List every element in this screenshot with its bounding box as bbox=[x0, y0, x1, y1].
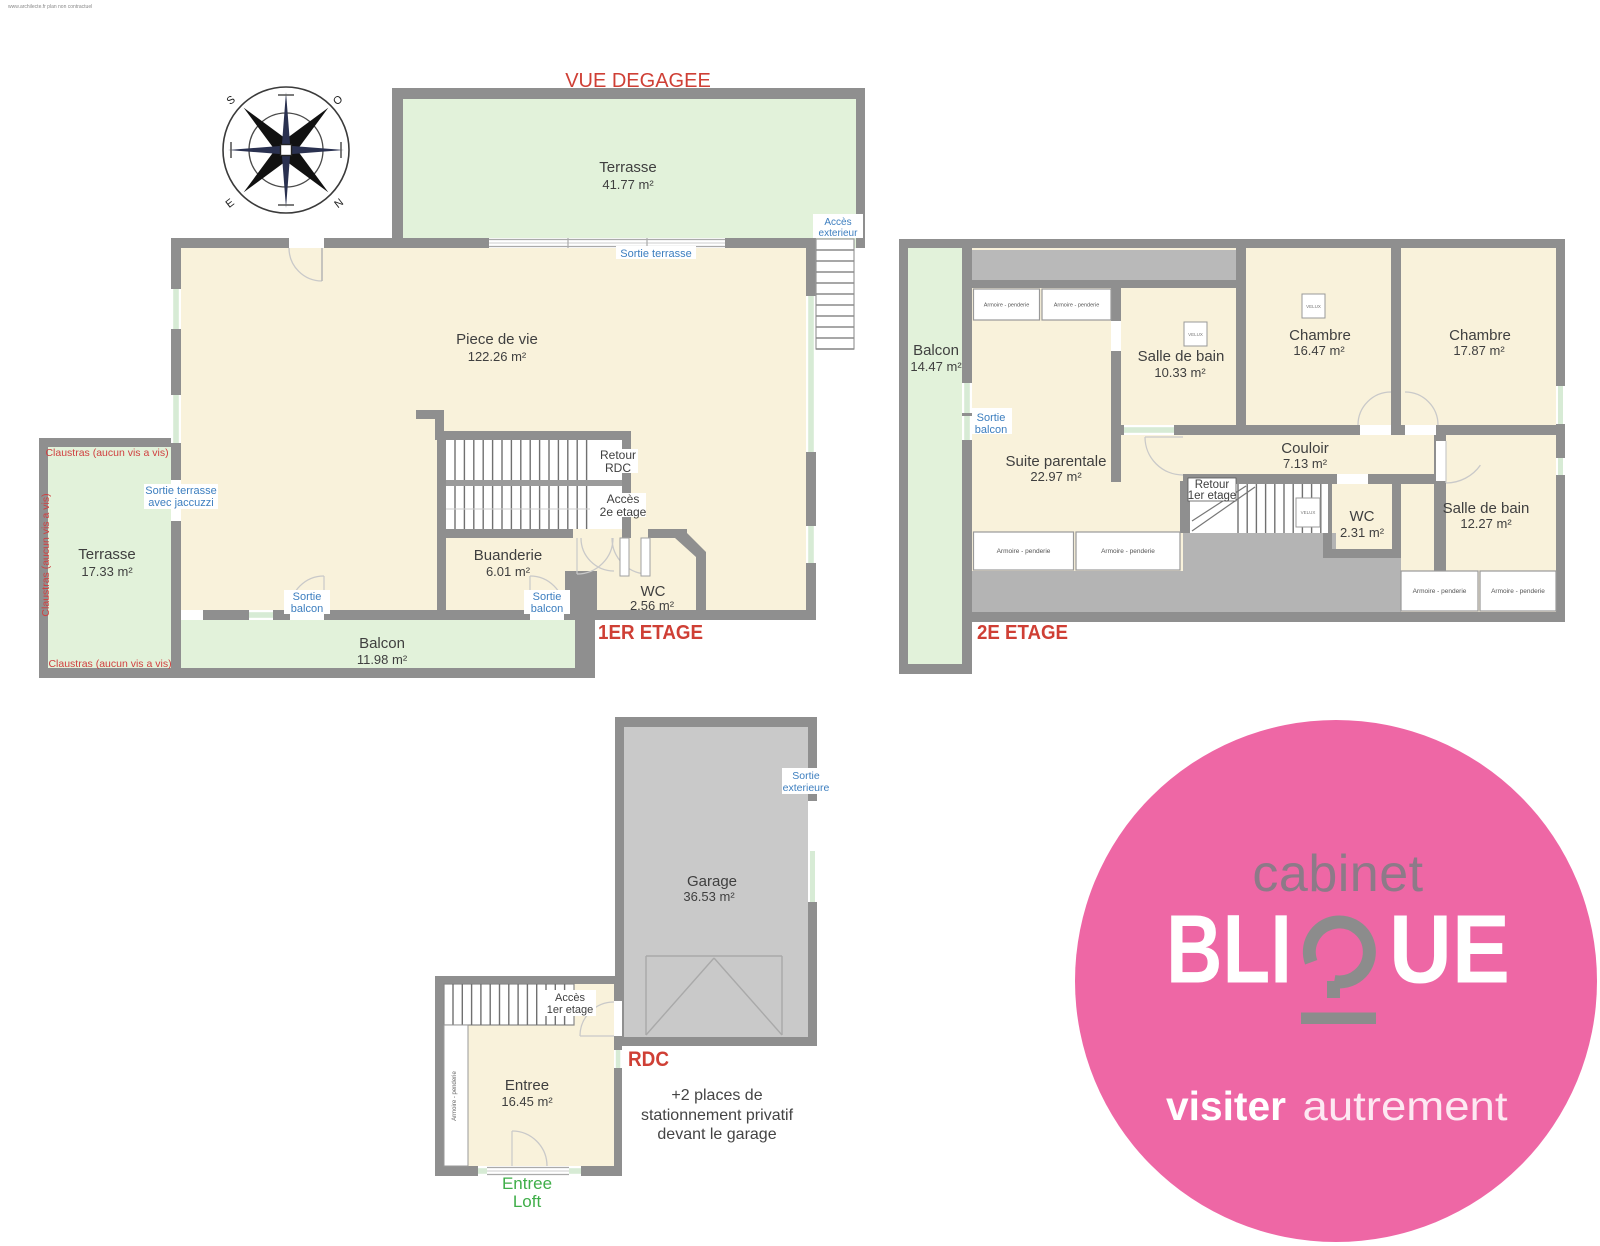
svg-text:Accès: Accès bbox=[824, 217, 851, 228]
svg-text:WC: WC bbox=[1350, 508, 1375, 525]
svg-text:RDC: RDC bbox=[605, 461, 631, 475]
svg-text:Claustras (aucun vis a vis): Claustras (aucun vis a vis) bbox=[48, 658, 171, 670]
svg-text:Sortie: Sortie bbox=[293, 591, 322, 603]
svg-text:exterieur: exterieur bbox=[819, 228, 859, 239]
svg-text:Loft: Loft bbox=[513, 1192, 542, 1211]
svg-text:22.97 m²: 22.97 m² bbox=[1030, 469, 1082, 484]
svg-text:Sortie terrasse: Sortie terrasse bbox=[620, 248, 692, 260]
svg-text:2.56 m²: 2.56 m² bbox=[630, 598, 675, 613]
svg-text:2.31 m²: 2.31 m² bbox=[1340, 525, 1385, 540]
svg-text:www.archilecte.fr plan non c: www.archilecte.fr plan non contractuel bbox=[8, 4, 92, 10]
svg-text:16.47 m²: 16.47 m² bbox=[1293, 343, 1345, 358]
svg-text:7.13 m²: 7.13 m² bbox=[1283, 456, 1328, 471]
svg-text:1ER ETAGE: 1ER ETAGE bbox=[598, 622, 703, 644]
svg-text:Armoire - penderie: Armoire - penderie bbox=[984, 303, 1030, 309]
svg-text:RDC: RDC bbox=[628, 1048, 669, 1071]
svg-text:balcon: balcon bbox=[291, 603, 323, 615]
svg-text:Sortie: Sortie bbox=[792, 770, 820, 782]
svg-text:devant le garage: devant le garage bbox=[657, 1126, 776, 1143]
svg-text:2E ETAGE: 2E ETAGE bbox=[977, 622, 1068, 644]
svg-text:Armoire - penderie: Armoire - penderie bbox=[1413, 588, 1467, 595]
svg-text:Piece de vie: Piece de vie bbox=[456, 331, 538, 348]
svg-text:Terrasse: Terrasse bbox=[78, 546, 136, 563]
svg-text:visiter: visiter bbox=[1166, 1083, 1286, 1129]
svg-text:1er etage: 1er etage bbox=[1188, 490, 1237, 502]
svg-text:Salle de bain: Salle de bain bbox=[1138, 348, 1225, 365]
svg-text:Entree: Entree bbox=[502, 1174, 552, 1193]
svg-text:Claustras (aucun vis a vis): Claustras (aucun vis a vis) bbox=[40, 493, 52, 616]
svg-text:VELUX: VELUX bbox=[1306, 304, 1321, 309]
svg-text:17.87 m²: 17.87 m² bbox=[1453, 343, 1505, 358]
svg-text:VELUX: VELUX bbox=[1301, 510, 1316, 515]
svg-text:17.33 m²: 17.33 m² bbox=[81, 564, 133, 579]
svg-text:12.27 m²: 12.27 m² bbox=[1460, 516, 1512, 531]
svg-text:Garage: Garage bbox=[687, 873, 737, 890]
svg-text:BLI: BLI bbox=[1166, 895, 1292, 1004]
svg-text:Sortie: Sortie bbox=[977, 412, 1006, 424]
svg-text:11.98 m²: 11.98 m² bbox=[357, 652, 408, 667]
svg-text:+2 places de: +2 places de bbox=[671, 1087, 762, 1104]
svg-text:Chambre: Chambre bbox=[1449, 327, 1511, 344]
svg-text:Accès: Accès bbox=[555, 992, 585, 1004]
svg-text:stationnement privatif: stationnement privatif bbox=[641, 1107, 794, 1124]
svg-text:16.45 m²: 16.45 m² bbox=[501, 1094, 553, 1109]
svg-text:Suite parentale: Suite parentale bbox=[1006, 453, 1107, 470]
svg-text:Balcon: Balcon bbox=[913, 342, 959, 359]
svg-text:14.47 m²: 14.47 m² bbox=[910, 359, 962, 374]
svg-text:Couloir: Couloir bbox=[1281, 440, 1329, 457]
svg-text:Armoire - penderie: Armoire - penderie bbox=[1101, 548, 1155, 555]
svg-text:autrement: autrement bbox=[1303, 1083, 1509, 1129]
svg-text:Retour: Retour bbox=[600, 448, 636, 462]
svg-text:1er etage: 1er etage bbox=[547, 1004, 593, 1016]
svg-text:6.01 m²: 6.01 m² bbox=[486, 564, 531, 579]
svg-text:Chambre: Chambre bbox=[1289, 327, 1351, 344]
svg-text:Terrasse: Terrasse bbox=[599, 159, 657, 176]
svg-text:Sortie: Sortie bbox=[533, 591, 562, 603]
svg-text:Sortie terrasse: Sortie terrasse bbox=[145, 485, 217, 497]
svg-text:Accès: Accès bbox=[607, 492, 640, 506]
svg-text:2e etage: 2e etage bbox=[600, 505, 647, 519]
svg-text:avec jaccuzzi: avec jaccuzzi bbox=[148, 497, 213, 509]
svg-text:Armoire - penderie: Armoire - penderie bbox=[1054, 303, 1100, 309]
svg-text:122.26 m²: 122.26 m² bbox=[468, 349, 527, 364]
svg-text:UE: UE bbox=[1389, 895, 1510, 1004]
svg-text:Balcon: Balcon bbox=[359, 635, 405, 652]
svg-text:exterieure: exterieure bbox=[783, 782, 830, 794]
svg-text:balcon: balcon bbox=[531, 603, 563, 615]
svg-text:VELUX: VELUX bbox=[1188, 332, 1203, 337]
svg-text:Armoire - penderie: Armoire - penderie bbox=[452, 1070, 458, 1120]
svg-text:36.53 m²: 36.53 m² bbox=[683, 889, 735, 904]
svg-text:41.77 m²: 41.77 m² bbox=[602, 177, 654, 192]
svg-text:Armoire - penderie: Armoire - penderie bbox=[1491, 588, 1545, 595]
svg-text:Armoire - penderie: Armoire - penderie bbox=[997, 548, 1051, 555]
svg-text:10.33 m²: 10.33 m² bbox=[1154, 365, 1206, 380]
svg-text:VUE DEGAGEE: VUE DEGAGEE bbox=[565, 70, 711, 92]
svg-text:balcon: balcon bbox=[975, 424, 1007, 436]
svg-text:Buanderie: Buanderie bbox=[474, 547, 542, 564]
svg-text:Salle de bain: Salle de bain bbox=[1443, 500, 1530, 517]
svg-text:Entree: Entree bbox=[505, 1077, 549, 1094]
svg-text:Claustras (aucun vis a vis): Claustras (aucun vis a vis) bbox=[45, 447, 168, 459]
